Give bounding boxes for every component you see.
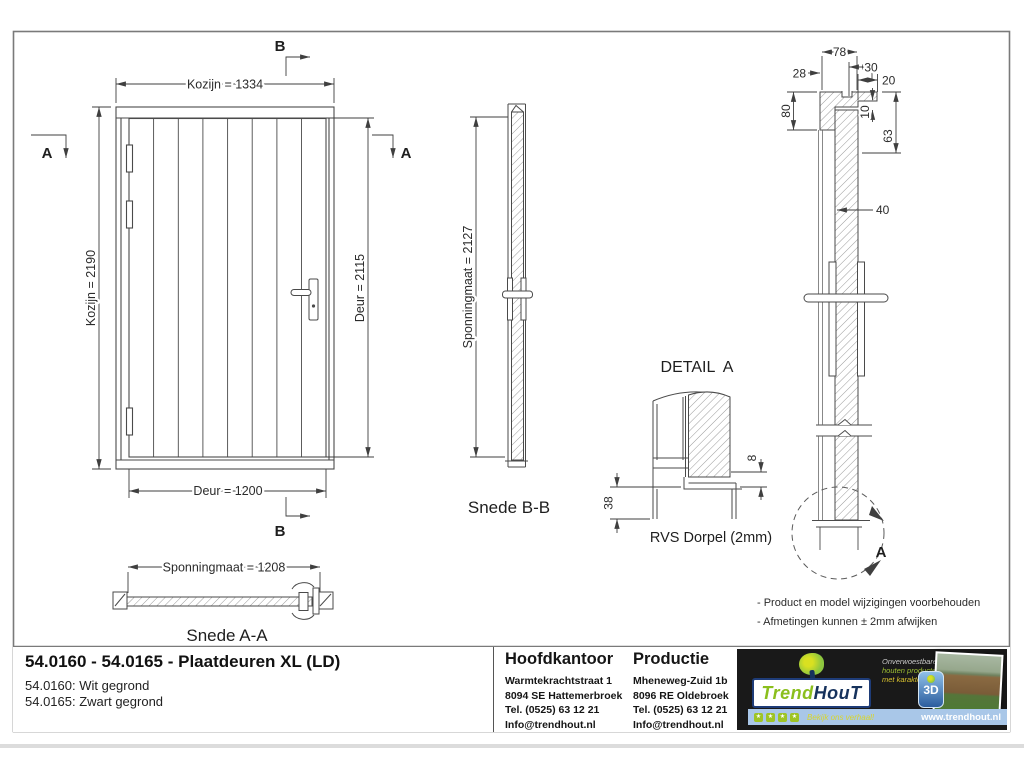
detail-a-drawing	[653, 392, 742, 519]
dim-8-label: 8	[745, 454, 759, 461]
tree-icon	[797, 653, 827, 681]
note-line-2: - Afmetingen kunnen ± 2mm afwijken	[757, 616, 937, 628]
marker-b-top-label: B	[275, 38, 286, 55]
dim-28-label: 28	[793, 67, 807, 81]
dim-63-label: 63	[881, 129, 895, 143]
brand-trend-text: Trend	[761, 683, 813, 704]
brand-hout-text: HouT	[814, 683, 862, 704]
dim-30: 30	[849, 61, 878, 97]
snede-aa-label: Snede A-A	[186, 626, 268, 645]
dim-78: 78	[822, 45, 857, 90]
dim-sponningmaat-2127: Sponningmaat = 2127	[461, 117, 508, 457]
dim-38-label: 38	[602, 496, 616, 510]
hoofdkantoor-phone: Tel. (0525) 63 12 21	[505, 703, 622, 718]
dim-28: 28	[793, 67, 820, 81]
title-block-divider	[493, 647, 494, 732]
dim-80-label: 80	[779, 104, 793, 118]
hoofdkantoor-city: 8094 SE Hattemerbroek	[505, 689, 622, 704]
star-icon: ★	[754, 713, 763, 722]
star-icon: ★	[766, 713, 775, 722]
callout-arrow-bottom	[864, 560, 881, 576]
dim-10-label: 10	[858, 105, 872, 119]
marker-a-callout-label: A	[876, 544, 887, 561]
hoofdkantoor-heading: Hoofdkantoor	[505, 650, 622, 669]
right-section: A 78 30 28 20	[779, 45, 901, 579]
deur-height-label: Deur = 2115	[353, 254, 367, 322]
slogan-line-1: Onverwoestbare	[882, 657, 940, 666]
frame-edge-lines	[819, 130, 823, 520]
break-lines	[816, 420, 872, 437]
section-marker-b-bottom: B	[275, 497, 310, 540]
website-link[interactable]: www.trendhout.nl	[921, 712, 1001, 723]
bottom-divider	[0, 744, 1024, 748]
notes: - Product en model wijzigingen voorbehou…	[757, 597, 980, 628]
3d-badge-tree-icon	[927, 675, 935, 683]
deur-width-label: Deur = 1200	[193, 484, 262, 498]
kozijn-width-label: Kozijn = 1334	[187, 78, 263, 92]
star-icon: ★	[778, 713, 787, 722]
marker-a-left-label: A	[42, 145, 53, 162]
dim-kozijn-height: Kozijn = 2190	[84, 107, 111, 469]
snede-bb-label: Snede B-B	[468, 498, 550, 517]
door-elevation	[116, 107, 334, 469]
sponningmaat-2127-label: Sponningmaat = 2127	[461, 226, 475, 349]
marker-a-right-label: A	[401, 145, 412, 162]
productie-email[interactable]: Info@trendhout.nl	[633, 718, 729, 733]
star-icon: ★	[790, 713, 799, 722]
detail-a: DETAIL A 8	[602, 359, 773, 546]
rvs-dorpel-label: RVS Dorpel (2mm)	[650, 530, 772, 546]
callout-arrow-top	[869, 506, 884, 521]
dim-kozijn-width: Kozijn = 1334	[116, 78, 334, 104]
marker-b-bottom-label: B	[275, 523, 286, 540]
brand-tagline: Bekijk ons verhaal!	[807, 713, 874, 722]
door-leaf-section-lower	[835, 436, 858, 520]
gazebo-photo-image	[935, 653, 1002, 712]
section-marker-a-left: A	[31, 135, 66, 162]
3d-badge-label: 3D	[923, 683, 938, 697]
variant-wit-gegrond: 54.0160: Wit gegrond	[25, 678, 149, 693]
hinge-bottom	[127, 408, 133, 435]
drawing-title: 54.0160 - 54.0165 - Plaatdeuren XL (LD)	[25, 652, 340, 672]
dim-40-label: 40	[876, 203, 890, 217]
kozijn-height-label: Kozijn = 2190	[84, 250, 98, 326]
title-block: 54.0160 - 54.0165 - Plaatdeuren XL (LD) …	[13, 647, 1010, 732]
hinge-middle	[127, 201, 133, 228]
sponningmaat-1208-label: Sponningmaat = 1208	[163, 561, 286, 575]
section-marker-a-right: A	[372, 135, 412, 162]
productie-heading: Productie	[633, 650, 729, 669]
dim-20-label: 20	[882, 74, 896, 88]
dim-deur-width: Deur = 1200	[129, 469, 326, 498]
dim-sponningmaat-1208: Sponningmaat = 1208	[128, 561, 320, 594]
dim-80: 80	[779, 92, 817, 130]
hinge-top	[127, 145, 133, 172]
snede-bb: Sponningmaat = 2127 Snede B-B	[461, 104, 550, 517]
section-marker-b-top: B	[275, 38, 310, 76]
productie-city: 8096 RE Oldebroek	[633, 689, 729, 704]
dim-78-label: 78	[833, 45, 847, 59]
detail-a-title: DETAIL A	[661, 359, 734, 376]
dim-30-label: 30	[864, 61, 878, 75]
trendhout-logo-block: TrendHouT Onverwoestbare houten producte…	[737, 649, 1007, 730]
dorpel-bottom	[812, 521, 870, 551]
hoofdkantoor-email[interactable]: Info@trendhout.nl	[505, 718, 622, 733]
variant-zwart-gegrond: 54.0165: Zwart gegrond	[25, 694, 163, 709]
note-line-1: - Product en model wijzigingen voorbehou…	[757, 597, 980, 609]
snede-aa: Sponningmaat = 1208 Snede A-A	[113, 561, 333, 646]
productie-phone: Tel. (0525) 63 12 21	[633, 703, 729, 718]
3d-badge-icon: 3D	[918, 671, 944, 708]
productie-address: Mheneweg-Zuid 1b	[633, 674, 729, 689]
trendhout-wordmark: TrendHouT	[752, 678, 871, 708]
door-leaf-section-upper	[835, 110, 858, 425]
door-panel-section	[127, 597, 312, 606]
dim-38: 38	[602, 473, 682, 533]
hoofdkantoor-address: Warmtekrachtstraat 1	[505, 674, 622, 689]
productie-column: Productie Mheneweg-Zuid 1b 8096 RE Oldeb…	[633, 650, 729, 732]
logo-blue-bar: ★ ★ ★ ★ Bekijk ons verhaal! www.trendhou…	[748, 709, 1007, 725]
hoofdkantoor-column: Hoofdkantoor Warmtekrachtstraat 1 8094 S…	[505, 650, 622, 732]
